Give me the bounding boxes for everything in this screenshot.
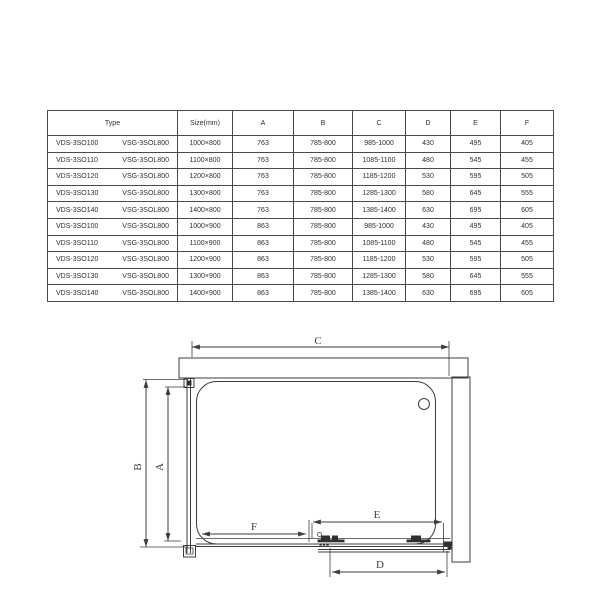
cell-a: 763: [233, 185, 294, 202]
cell-a: 863: [233, 285, 294, 302]
cell-b: 785-800: [294, 136, 353, 153]
type-model-1: VDS-3SO120: [56, 173, 98, 180]
type-model-1: VDS-3SO100: [56, 140, 98, 147]
type-model-1: VDS-3SO130: [56, 273, 98, 280]
cell-d: 530: [406, 252, 451, 269]
cell-f: 405: [501, 136, 554, 153]
table-row: VDS-3SO140 VSG-3SOL800 1400×800 763 785-…: [48, 202, 554, 219]
cell-a: 763: [233, 169, 294, 186]
type-model-1: VDS-3SO110: [56, 240, 98, 247]
table-row: VDS-3SO110 VSG-3SOL800 1100×800 763 785-…: [48, 152, 554, 169]
cell-a: 763: [233, 136, 294, 153]
cell-c: 1285-1300: [353, 185, 406, 202]
dim-label-e: E: [374, 509, 381, 521]
cell-d: 580: [406, 268, 451, 285]
cell-size: 1200×800: [178, 169, 233, 186]
cell-c: 1085-1100: [353, 235, 406, 252]
cell-type: VDS-3SO100 VSG-3SOL800: [48, 218, 178, 235]
dimension-c: C: [192, 335, 449, 376]
spec-table-body: VDS-3SO100 VSG-3SOL800 1000×800 763 785-…: [48, 136, 554, 302]
cell-b: 785-800: [294, 252, 353, 269]
cell-type: VDS-3SO110 VSG-3SOL800: [48, 235, 178, 252]
cell-f: 605: [501, 285, 554, 302]
cell-d: 480: [406, 235, 451, 252]
cell-b: 785-800: [294, 202, 353, 219]
cell-a: 763: [233, 152, 294, 169]
cell-type: VDS-3SO130 VSG-3SOL800: [48, 185, 178, 202]
cell-f: 555: [501, 268, 554, 285]
type-model-2: VSG-3SOL800: [122, 190, 169, 197]
cell-e: 495: [451, 136, 501, 153]
cell-d: 430: [406, 136, 451, 153]
roller-right: [407, 536, 431, 543]
dimension-a: A: [154, 387, 187, 541]
cell-b: 785-800: [294, 169, 353, 186]
cell-e: 595: [451, 252, 501, 269]
cell-f: 455: [501, 235, 554, 252]
cell-e: 645: [451, 185, 501, 202]
cell-d: 480: [406, 152, 451, 169]
cell-f: 555: [501, 185, 554, 202]
cell-b: 785-800: [294, 218, 353, 235]
header-col-d: D: [406, 111, 451, 136]
cell-c: 1385-1400: [353, 202, 406, 219]
cell-c: 1385-1400: [353, 285, 406, 302]
type-model-1: VDS-3SO130: [56, 190, 98, 197]
cell-size: 1300×900: [178, 268, 233, 285]
cell-c: 1085-1100: [353, 152, 406, 169]
cell-size: 1200×900: [178, 252, 233, 269]
cell-size: 1100×900: [178, 235, 233, 252]
dim-label-b: B: [132, 463, 144, 470]
header-col-e: E: [451, 111, 501, 136]
cell-e: 695: [451, 285, 501, 302]
cell-d: 530: [406, 169, 451, 186]
type-model-2: VSG-3SOL800: [122, 256, 169, 263]
cell-f: 405: [501, 218, 554, 235]
cell-size: 1400×800: [178, 202, 233, 219]
cell-e: 595: [451, 169, 501, 186]
table-row: VDS-3SO120 VSG-3SOL800 1200×800 763 785-…: [48, 169, 554, 186]
header-col-f: F: [501, 111, 554, 136]
door-wall-bracket: [444, 542, 453, 550]
cell-f: 505: [501, 252, 554, 269]
cell-d: 630: [406, 202, 451, 219]
drain-hole: [419, 399, 430, 410]
cell-type: VDS-3SO100 VSG-3SOL800: [48, 136, 178, 153]
cell-b: 785-800: [294, 152, 353, 169]
type-model-2: VSG-3SOL800: [122, 157, 169, 164]
dim-label-a: A: [154, 463, 166, 471]
cell-b: 785-800: [294, 235, 353, 252]
cell-size: 1100×800: [178, 152, 233, 169]
type-model-1: VDS-3SO120: [56, 256, 98, 263]
header-col-c: C: [353, 111, 406, 136]
type-model-2: VSG-3SOL800: [122, 223, 169, 230]
type-model-1: VDS-3SO100: [56, 223, 98, 230]
cell-size: 1000×800: [178, 136, 233, 153]
cell-e: 545: [451, 235, 501, 252]
table-row: VDS-3SO120 VSG-3SOL800 1200×900 863 785-…: [48, 252, 554, 269]
cell-d: 430: [406, 218, 451, 235]
cell-c: 985-1000: [353, 218, 406, 235]
type-model-1: VDS-3SO140: [56, 290, 98, 297]
cell-c: 1185-1200: [353, 252, 406, 269]
table-row: VDS-3SO100 VSG-3SOL800 1000×900 863 785-…: [48, 218, 554, 235]
cell-type: VDS-3SO130 VSG-3SOL800: [48, 268, 178, 285]
type-model-2: VSG-3SOL800: [122, 207, 169, 214]
shower-tray: [197, 382, 436, 545]
header-col-a: A: [233, 111, 294, 136]
table-header-row: Type Size(mm) A B C D E F: [48, 111, 554, 136]
cell-type: VDS-3SO110 VSG-3SOL800: [48, 152, 178, 169]
type-model-2: VSG-3SOL800: [122, 290, 169, 297]
cell-size: 1000×900: [178, 218, 233, 235]
table-row: VDS-3SO140 VSG-3SOL800 1400×900 863 785-…: [48, 285, 554, 302]
cell-b: 785-800: [294, 185, 353, 202]
cell-e: 545: [451, 152, 501, 169]
cell-type: VDS-3SO140 VSG-3SOL800: [48, 285, 178, 302]
cell-e: 695: [451, 202, 501, 219]
cell-f: 455: [501, 152, 554, 169]
header-size: Size(mm): [178, 111, 233, 136]
cell-type: VDS-3SO120 VSG-3SOL800: [48, 252, 178, 269]
spec-table: Type Size(mm) A B C D E F VDS-3SO100 VSG…: [47, 110, 554, 302]
cell-c: 985-1000: [353, 136, 406, 153]
type-model-2: VSG-3SOL800: [122, 140, 169, 147]
dimension-e: E: [312, 509, 444, 552]
table-row: VDS-3SO100 VSG-3SOL800 1000×800 763 785-…: [48, 136, 554, 153]
cell-type: VDS-3SO120 VSG-3SOL800: [48, 169, 178, 186]
type-model-2: VSG-3SOL800: [122, 273, 169, 280]
cell-a: 863: [233, 252, 294, 269]
table-row: VDS-3SO130 VSG-3SOL800 1300×900 863 785-…: [48, 268, 554, 285]
side-glass-panel: [184, 378, 196, 557]
cell-f: 605: [501, 202, 554, 219]
cell-c: 1185-1200: [353, 169, 406, 186]
cell-a: 763: [233, 202, 294, 219]
type-model-1: VDS-3SO110: [56, 157, 98, 164]
cell-c: 1285-1300: [353, 268, 406, 285]
cell-a: 863: [233, 268, 294, 285]
dim-label-d: D: [376, 559, 384, 571]
cell-b: 785-800: [294, 268, 353, 285]
table-row: VDS-3SO130 VSG-3SOL800 1300×800 763 785-…: [48, 185, 554, 202]
table-row: VDS-3SO110 VSG-3SOL800 1100×900 863 785-…: [48, 235, 554, 252]
header-col-b: B: [294, 111, 353, 136]
cell-e: 495: [451, 218, 501, 235]
top-wall: [179, 358, 468, 378]
cell-type: VDS-3SO140 VSG-3SOL800: [48, 202, 178, 219]
dim-label-c: C: [314, 335, 321, 347]
cell-f: 505: [501, 169, 554, 186]
dim-label-f: F: [251, 521, 257, 533]
cell-a: 863: [233, 235, 294, 252]
cell-a: 863: [233, 218, 294, 235]
cell-size: 1400×900: [178, 285, 233, 302]
cell-b: 785-800: [294, 285, 353, 302]
cell-d: 630: [406, 285, 451, 302]
cell-d: 580: [406, 185, 451, 202]
cell-e: 645: [451, 268, 501, 285]
spec-sheet-page: Type Size(mm) A B C D E F VDS-3SO100 VSG…: [0, 0, 600, 600]
header-type: Type: [48, 111, 178, 136]
type-model-2: VSG-3SOL800: [122, 173, 169, 180]
cell-size: 1300×800: [178, 185, 233, 202]
shower-enclosure-drawing: C B A F E: [0, 325, 600, 595]
right-wall: [452, 377, 470, 562]
type-model-2: VSG-3SOL800: [122, 240, 169, 247]
type-model-1: VDS-3SO140: [56, 207, 98, 214]
